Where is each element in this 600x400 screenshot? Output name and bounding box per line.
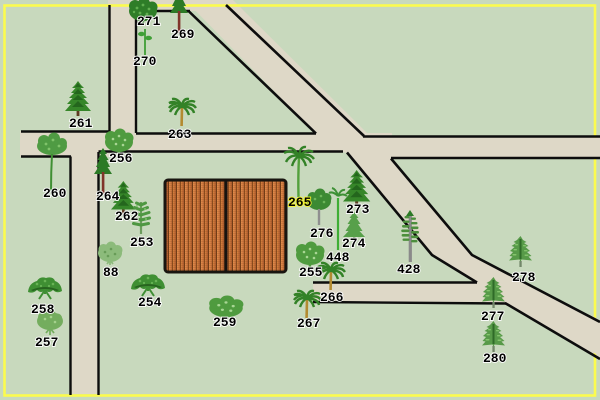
svg-text:259: 259: [213, 315, 237, 330]
svg-text:277: 277: [481, 309, 504, 324]
svg-text:448: 448: [326, 250, 350, 265]
svg-text:267: 267: [297, 316, 320, 331]
svg-text:255: 255: [299, 265, 323, 280]
svg-text:257: 257: [35, 335, 58, 350]
svg-text:258: 258: [31, 302, 55, 317]
svg-text:254: 254: [138, 295, 162, 310]
svg-text:263: 263: [168, 127, 192, 142]
svg-text:266: 266: [320, 290, 344, 305]
svg-text:280: 280: [483, 351, 507, 366]
svg-text:265: 265: [288, 195, 312, 210]
svg-text:428: 428: [397, 262, 421, 277]
svg-text:260: 260: [43, 186, 67, 201]
svg-text:269: 269: [171, 27, 195, 42]
svg-text:276: 276: [310, 226, 334, 241]
svg-text:271: 271: [137, 14, 161, 29]
svg-text:88: 88: [103, 265, 119, 280]
svg-text:278: 278: [512, 270, 536, 285]
svg-text:264: 264: [96, 189, 120, 204]
svg-text:253: 253: [130, 235, 154, 250]
svg-text:273: 273: [346, 202, 370, 217]
svg-text:262: 262: [115, 209, 139, 224]
svg-text:270: 270: [133, 54, 157, 69]
svg-text:261: 261: [69, 116, 93, 131]
svg-text:256: 256: [109, 151, 133, 166]
svg-text:274: 274: [342, 236, 366, 251]
